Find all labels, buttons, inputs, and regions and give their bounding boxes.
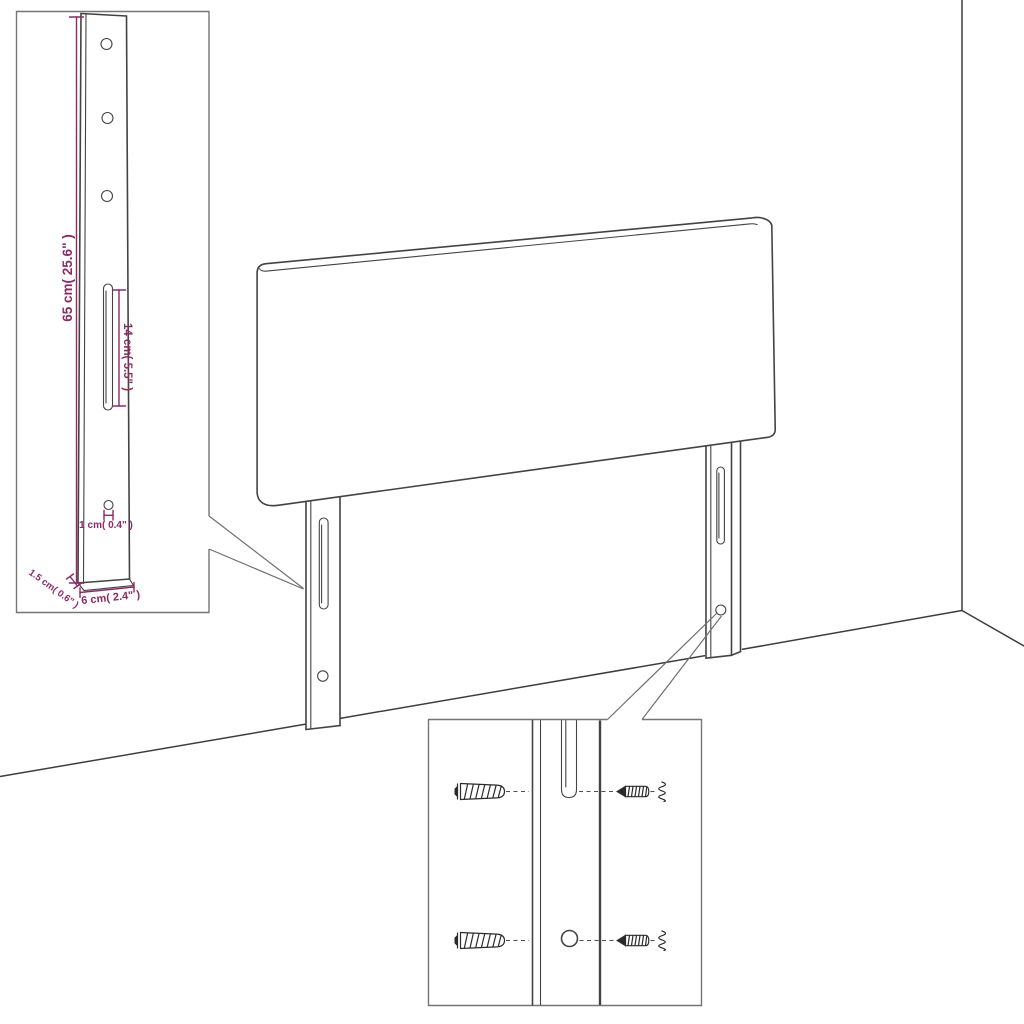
mounting-detail-callout-box [429,614,722,1006]
diagram-canvas: 65 cm( 25.6" ) 14 cm( 5.5" ) 1 cm( 0.4" … [0,0,1024,1024]
detail-leg-bottom-front [78,579,130,583]
screw-thread-coil-icon-top [659,782,666,802]
callout-line-lower [209,549,304,589]
right-leg-bottom-side [732,652,741,656]
detail-leg [78,14,134,591]
headboard-diagram: 65 cm( 25.6" ) 14 cm( 5.5" ) 1 cm( 0.4" … [0,0,1024,1024]
dimension-leg-thickness: 1.5 cm( 0.6" ) [26,567,81,611]
mounting-detail-leg [533,721,601,1006]
detail-leg-hole-2 [102,113,113,124]
left-leg [306,497,340,730]
left-leg-slot [319,518,328,609]
mounting-leg-slot [562,721,577,798]
right-leg-hole [716,605,726,615]
room-corner [0,0,1024,777]
floor-line-right [962,611,1024,647]
headboard-panel [257,217,775,505]
detail-leg-inner-edge [84,14,87,584]
callout-line-upper [209,516,304,589]
dimension-slot-label: 14 cm( 5.5" ) [121,323,133,391]
right-leg-bottom-front [706,655,732,658]
floor-line-left-3 [743,611,963,650]
mounting-callout-line-left [608,614,717,720]
dimension-hole-diameter: 1 cm( 0.4" ) [79,511,133,532]
screw-icon-bottom [617,935,649,945]
dimension-hole-label: 1 cm( 0.4" ) [79,520,133,531]
screw-icon-top [617,786,649,796]
detail-leg-hole-1 [101,39,112,50]
mounting-box-border [429,720,702,1006]
panel-top-edge-line [260,224,758,271]
right-leg-slot [717,467,725,544]
wall-plug-icon-top [455,784,505,800]
right-leg [706,441,741,658]
wall-plug-icon-bottom [455,933,505,949]
detail-leg-slot [104,284,113,410]
left-leg-hole [318,671,328,681]
dimension-slot-length: 14 cm( 5.5" ) [113,290,134,406]
floor-line-left-1 [0,724,305,776]
panel-outline [257,217,775,505]
detail-leg-small-hole [104,501,113,510]
detail-leg-left-edge [78,14,81,584]
dimension-thickness-tick-1 [67,574,74,579]
dimension-height-label: 65 cm( 25.6" ) [60,234,75,321]
screw-thread-coil-icon-bottom [659,931,666,951]
dimension-thickness-label: 1.5 cm( 0.6" ) [26,567,80,611]
detail-leg-right-edge [127,16,130,579]
mounting-callout-line-right [642,616,722,720]
mounting-leg-hole [562,931,578,947]
leg-detail-callout-box: 65 cm( 25.6" ) 14 cm( 5.5" ) 1 cm( 0.4" … [17,12,304,613]
detail-leg-top-edge [81,14,127,17]
detail-leg-hole-3 [102,191,113,202]
